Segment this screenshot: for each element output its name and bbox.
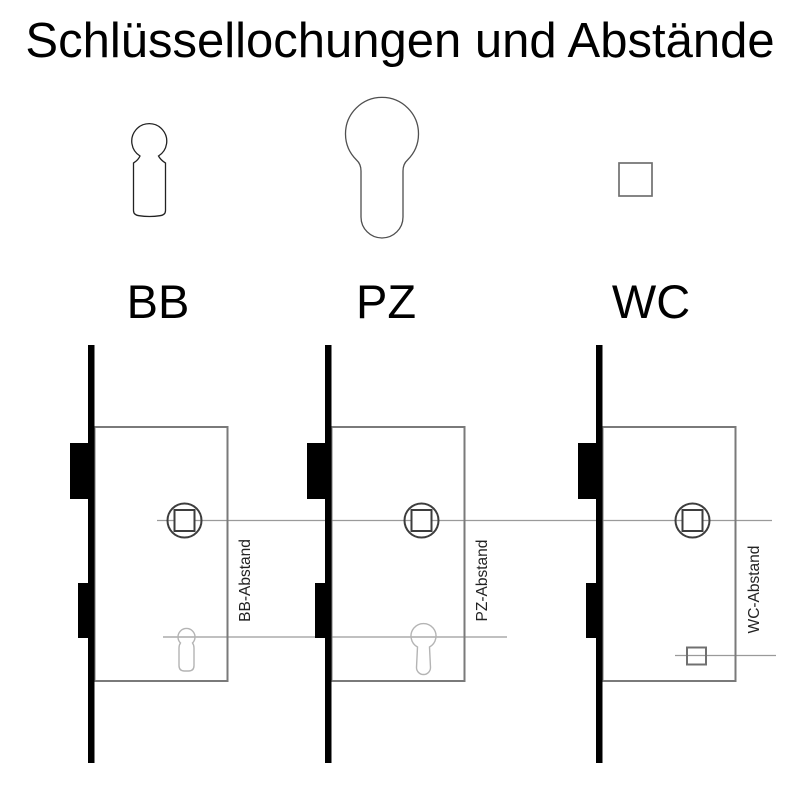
bb-type-label: BB [127, 275, 190, 328]
wc-square-icon [619, 163, 652, 196]
handle-follower-square [175, 510, 195, 531]
bb-distance-label: BB-Abstand [237, 539, 254, 622]
keyhole-type-labels: BB PZ WC [127, 275, 691, 328]
handle-follower-square [412, 510, 432, 531]
pz-cylinder-icon [346, 97, 419, 238]
wc-distance-label: WC-Abstand [746, 546, 763, 634]
lock-diagram-wc: WC-Abstand [578, 345, 763, 763]
pz-inner-keyhole [411, 624, 436, 675]
lock-case [603, 427, 736, 681]
lock-diagram-bb: BB-Abstand [70, 345, 254, 763]
lock-case [95, 427, 228, 681]
pz-distance-label: PZ-Abstand [474, 540, 491, 622]
page-title: Schlüssellochungen und Abstände [25, 14, 774, 68]
bb-keyhole-icon [132, 124, 167, 217]
lock-diagram-pz: PZ-Abstand [307, 345, 491, 763]
faceplate [325, 345, 332, 763]
pz-type-label: PZ [356, 275, 416, 328]
handle-follower-square [683, 510, 703, 531]
faceplate [88, 345, 95, 763]
keyhole-symbols-row [132, 97, 652, 238]
lock-case [332, 427, 465, 681]
wc-type-label: WC [612, 275, 690, 328]
bb-inner-keyhole [178, 628, 195, 671]
technical-drawing-page: Schlüssellochungen und Abstände BB PZ WC… [0, 0, 800, 800]
lock-diagram-svg: Schlüssellochungen und Abstände BB PZ WC… [0, 0, 800, 800]
faceplate [596, 345, 603, 763]
